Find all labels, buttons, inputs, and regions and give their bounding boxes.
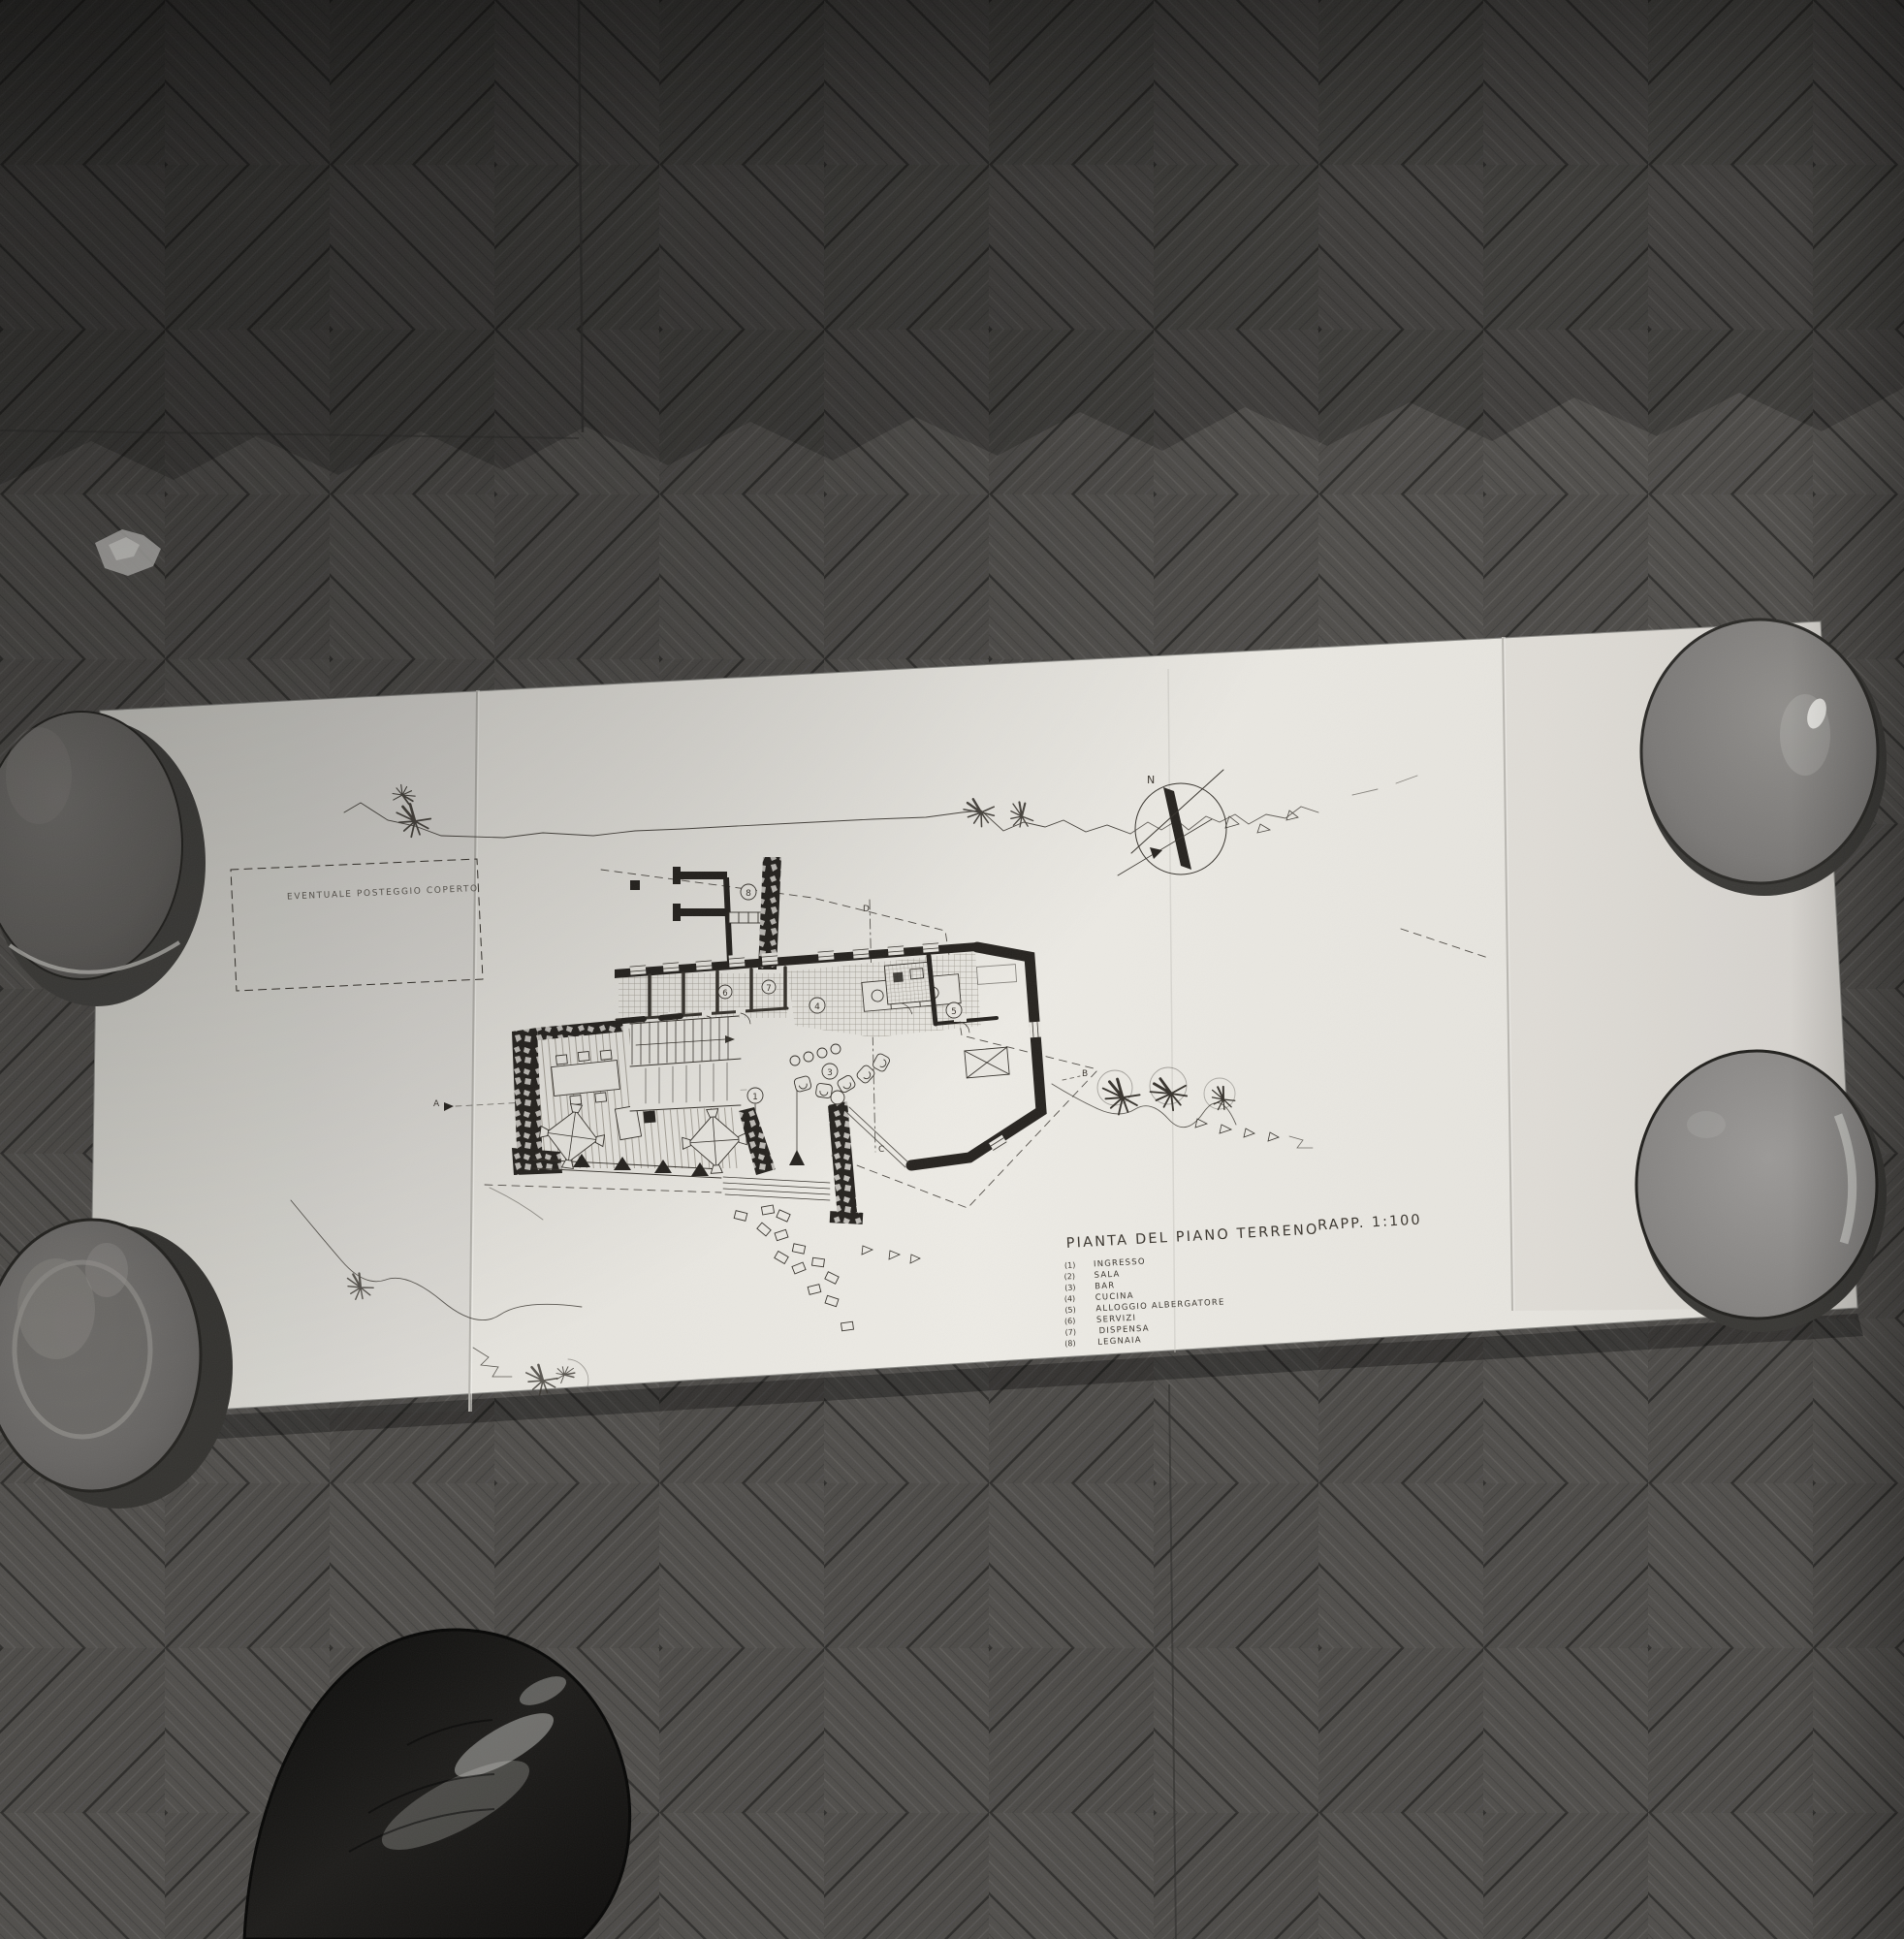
photograph: N EVENTUALE POSTEGGIO COPERTO D C A B	[0, 0, 1904, 1939]
film-grain-overlay	[0, 0, 1904, 1939]
